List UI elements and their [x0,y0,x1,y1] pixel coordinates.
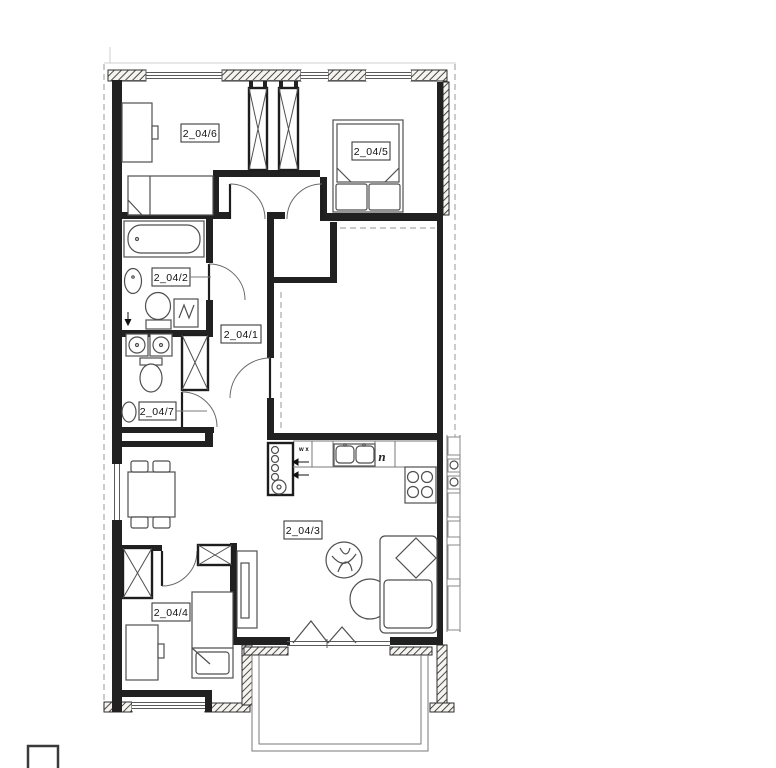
room-label-2-04-6: 2_04/6 [181,124,219,142]
shaft-corridor-left [249,88,267,170]
wc-appliance-right [150,334,172,356]
wardrobe-left [123,548,152,598]
sofa [380,536,437,633]
bathtub [124,221,204,257]
neighbour-unit-fragment [447,435,460,632]
window-top-middle [301,70,328,81]
floor-plan-drawing: n w x [0,0,776,768]
room-label-text: 2_04/6 [183,128,218,140]
double-bed [333,120,403,212]
room-label-2-04-3: 2_04/3 [284,521,322,539]
single-bed-bottom [192,592,233,678]
room-label-2-04-1: 2_04/1 [221,325,261,343]
door-wc [182,392,217,427]
furniture-dining [128,461,175,528]
shaft-corridor-right [279,88,298,170]
room-label-text: 2_04/7 [140,406,175,418]
kitchen-sink [334,444,375,466]
wardrobe-top [198,545,232,565]
supply-arrow [125,312,131,325]
room-label-2-04-5: 2_04/5 [352,142,390,160]
wc-sink [122,402,136,422]
furniture-bedroom-top-right [333,120,403,212]
floor-plan-page: n w x [0,0,776,768]
room-label-text: 2_04/3 [286,525,321,537]
room-label-2-04-7: 2_04/7 [139,402,207,420]
wc-appliance-left [126,334,148,356]
room-label-text: 2_04/5 [354,146,389,158]
door-bedroom-top-left [230,184,265,219]
kitchen-niche-mark: n [378,449,385,464]
door-bedroom-top-right [287,184,322,219]
stove [405,467,436,503]
window-left-dining [112,464,122,520]
chair [153,517,170,528]
drapery-symbols [293,621,356,643]
window-bottom-bedroom [132,700,205,711]
room-label-text: 2_04/1 [224,329,259,341]
door-bedroom-bottom [162,551,197,586]
chair [153,461,170,472]
door-entrance [230,358,270,398]
kitchen-riser-shaft [268,443,293,495]
toilet-bathroom [146,293,172,330]
room-label-2-04-2: 2_04/2 [152,268,211,286]
furniture-kitchen: n w x [293,441,437,503]
door-bathroom [209,264,245,300]
room-label-2-04-4: 2_04/4 [152,603,190,621]
chair [131,517,148,528]
desk-bottom [126,625,164,680]
window-top-right [366,70,411,81]
vent-arrows [293,459,309,478]
toilet-wc [140,358,162,392]
single-bed [128,176,213,215]
wardrobe-hall [182,335,208,390]
desk-chair-knob [152,126,158,139]
tv-unit [237,551,257,628]
bathroom-sink [125,269,142,294]
room-label-text: 2_04/2 [154,272,189,284]
vent-marks: w x [298,447,309,453]
balcony [252,655,428,751]
window-top-left [146,70,222,81]
room-label-text: 2_04/4 [154,607,189,619]
dining-table [128,472,175,517]
washing-machine [174,299,198,327]
scan-artifact-square [28,746,58,768]
desk [122,103,152,162]
furniture-bedroom-top-left [122,103,213,215]
chair [131,461,148,472]
sliding-door-balcony [287,639,390,648]
coffee-table-small [326,542,362,578]
furniture-living [237,536,437,643]
